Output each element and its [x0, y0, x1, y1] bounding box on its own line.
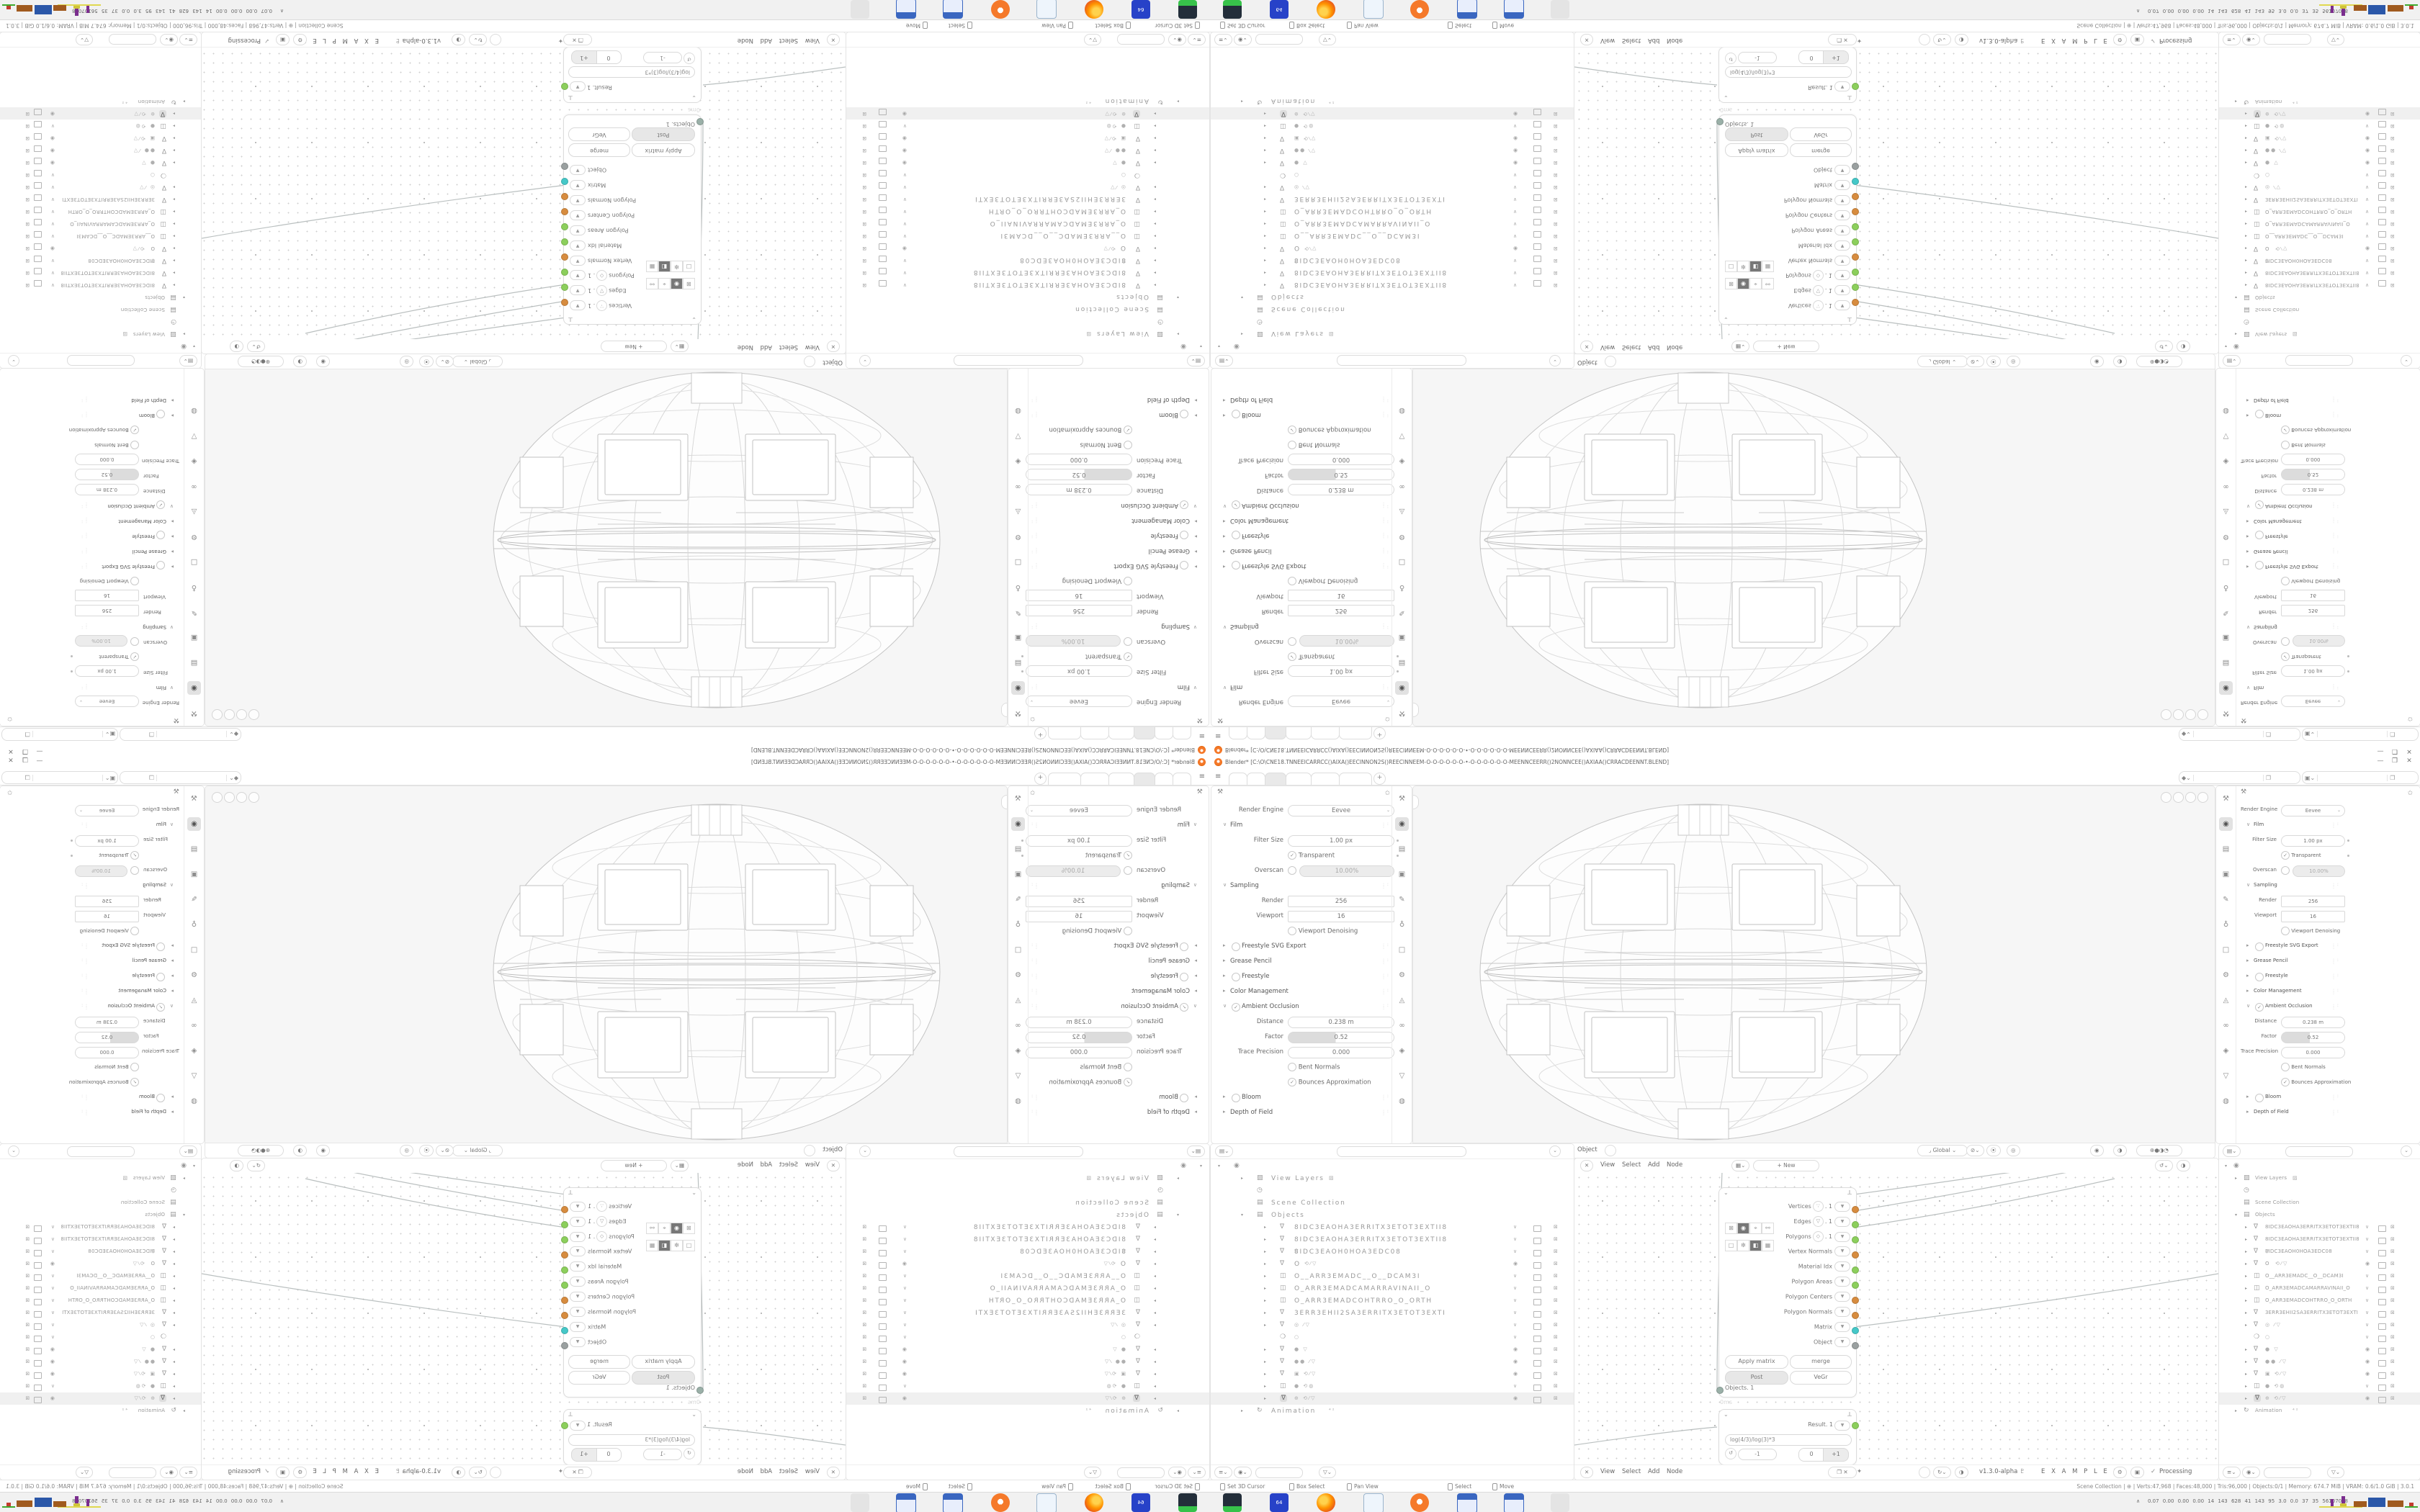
disabled-field[interactable]: 10.00% — [2293, 865, 2345, 877]
socket-row-polygon-centers[interactable]: Polygon Centers▼ — [570, 204, 701, 220]
hide-toggle[interactable]: ◉ — [902, 1395, 907, 1401]
nav-gizmo-camera[interactable] — [2197, 792, 2208, 803]
hide-toggle[interactable]: ∨ — [51, 1322, 55, 1328]
expand-arrow[interactable]: ▸ — [1264, 123, 1266, 128]
object-name[interactable]: 3ERR3EHII2SA3ERRITX3ETOT3EXTI — [62, 197, 155, 202]
radio-toggle[interactable] — [1124, 637, 1132, 646]
outliner-row-8idc3eaoha3erritx3etot3extii8[interactable]: ▸∇8IDC3EAOHA3ERRITX3ETOT3EXTII8∨⊠ — [1211, 266, 1574, 279]
section-arrow[interactable]: ∨ — [1223, 1003, 1227, 1009]
section-arrow[interactable]: ▸ — [171, 958, 174, 963]
tray-expand-icon[interactable]: ∧ — [2136, 8, 2140, 14]
nav-gizmo-pan[interactable] — [2185, 709, 2196, 720]
outliner-row-o-arr3emadc-o-dcam3i[interactable]: ▸◫O__ARR3EMADC__O__DCAM3I∨⊠ — [0, 230, 201, 242]
properties-tab-particles-icon[interactable]: ◬ — [2219, 505, 2233, 518]
render-disable-toggle[interactable]: ⊠ — [2390, 233, 2395, 239]
output-socket[interactable] — [561, 178, 568, 185]
section-toggle[interactable] — [2255, 1094, 2264, 1102]
properties-tab-world-icon[interactable]: ♁ — [187, 580, 201, 594]
taskbar-icon-hxd-64[interactable]: 64 — [1131, 0, 1150, 19]
outliner-row-objects[interactable]: ▾▤Objects — [0, 1209, 201, 1221]
outliner-row[interactable]: ▸∇●● ⁄▽◉⊠ — [846, 1356, 1209, 1368]
render-disable-toggle[interactable]: ⊠ — [1554, 1285, 1558, 1291]
shading-mode-buttons[interactable]: ⊕●◑◔ — [2136, 356, 2182, 367]
section-header[interactable]: Depth of Field — [131, 397, 166, 403]
node-menu-view[interactable]: View — [805, 1161, 820, 1169]
properties-tab-world-icon[interactable]: ♁ — [2219, 918, 2233, 932]
section-header[interactable]: Sampling — [143, 624, 166, 630]
object-name[interactable]: O — [1119, 1261, 1126, 1268]
expand-arrow[interactable]: ▸ — [173, 1396, 175, 1401]
properties-tab-object-icon[interactable]: □ — [1395, 943, 1409, 957]
hide-toggle[interactable]: ∨ — [2365, 270, 2369, 276]
scope-icon[interactable]: ◉⌄ — [2242, 34, 2260, 45]
expand-arrow[interactable]: ▸ — [1154, 148, 1156, 153]
search-input[interactable] — [2285, 355, 2353, 366]
expand-arrow[interactable]: ▾ — [1218, 1164, 1220, 1169]
expand-arrow[interactable]: ▸ — [1177, 1408, 1179, 1413]
node-canvas[interactable]: ⌄ ⟂ ⊠◉⌖⚯ □❇◧▦ Vertices∵. 1▼Edges▽. 1▼Pol… — [1574, 1173, 2218, 1465]
section-header[interactable]: Film — [2254, 822, 2264, 827]
section-header[interactable]: Color Management — [2254, 518, 2302, 524]
outliner-row-animation[interactable]: ▸↻Animation⁴² — [846, 95, 1209, 107]
expand-arrow[interactable]: ▸ — [2235, 331, 2237, 336]
nav-gizmo-zoom[interactable] — [2173, 792, 2184, 803]
display-mode-icon[interactable]: ▤⌄ — [179, 355, 197, 366]
properties-tab-scene-icon[interactable]: ✎ — [1011, 893, 1025, 906]
taskbar-icon-inactive-tool[interactable] — [1551, 0, 1569, 19]
value-field[interactable]: 256 — [1288, 605, 1394, 616]
render-disable-toggle[interactable]: ⊠ — [1554, 1346, 1558, 1352]
outliner-row-view-layers[interactable]: ▸▨View Layers▨ — [2219, 1172, 2420, 1184]
hide-toggle[interactable]: ∨ — [2365, 172, 2369, 178]
value-field[interactable]: 256 — [1026, 896, 1132, 907]
viewport-disable-toggle[interactable] — [879, 1348, 887, 1354]
checkbox[interactable] — [1288, 577, 1296, 585]
output-socket[interactable] — [561, 1206, 568, 1213]
gizmos-dropdown[interactable]: ◑ — [293, 356, 307, 367]
workspace-tab[interactable] — [1229, 727, 1247, 739]
render-disable-toggle[interactable]: ⊠ — [862, 258, 866, 264]
viewport-disable-toggle[interactable] — [1533, 182, 1541, 189]
node-menu-node[interactable]: Node — [738, 1468, 753, 1475]
outliner-row-o-arr3emadcohtrro-o-orth[interactable]: ▸◫O_ARR3EMADCOHTRRO_O_ORTH∨⊠ — [0, 1295, 201, 1307]
pivot-dropdown[interactable]: ⊘⌄ — [436, 356, 454, 367]
render-disable-toggle[interactable]: ⊠ — [2390, 1310, 2395, 1315]
expand-arrow[interactable]: ▸ — [1264, 1225, 1266, 1230]
outliner-row[interactable]: ❍○∨⊠ — [1211, 168, 1574, 181]
section-header[interactable]: Sampling — [2254, 624, 2277, 630]
properties-tab-world-icon[interactable]: ♁ — [1395, 580, 1409, 594]
outliner-row-8idc3eaoha3erritx3etot3extii8[interactable]: ▸∇8IDC3EAOHA3ERRITX3ETOT3EXTII8∨⊠ — [1211, 1233, 1574, 1246]
object-name[interactable]: Objects — [2255, 1212, 2275, 1218]
section-arrow[interactable]: ▸ — [1223, 413, 1226, 418]
outliner-row-view-layers[interactable]: ▸▨View Layers▨ — [0, 328, 201, 340]
socket-row-polygon-centers[interactable]: Polygon Centers▼ — [1719, 204, 1850, 220]
outliner-row[interactable]: ◷ — [1211, 315, 1574, 328]
outliner-row-objects[interactable]: ▾▤Objects — [1211, 1209, 1574, 1221]
pin-icon[interactable]: ✩ — [1384, 715, 1390, 722]
search-input[interactable] — [954, 355, 1083, 366]
disabled-field[interactable]: 10.00% — [1299, 635, 1394, 647]
properties-tab-material-icon[interactable]: ◍ — [187, 1094, 201, 1108]
expand-arrow[interactable]: ▸ — [2245, 1261, 2247, 1266]
outliner-row[interactable]: ▸∇▣ ⟲⁄▽◉⊠ — [1211, 1368, 1574, 1380]
taskbar-icon-firefox[interactable] — [1317, 0, 1335, 19]
viewport-disable-toggle[interactable] — [1533, 1336, 1541, 1342]
properties-tab-object-icon[interactable]: □ — [187, 943, 201, 957]
vegr-button[interactable]: VeGr — [1790, 1371, 1852, 1385]
hide-toggle[interactable]: ∨ — [1513, 197, 1517, 202]
hide-toggle[interactable]: ∨ — [2365, 1297, 2369, 1303]
section-arrow[interactable]: ▸ — [1223, 1109, 1226, 1115]
checkbox[interactable] — [1124, 1063, 1132, 1071]
outliner-row-3err3ehii2sa3erritx3etot3exti[interactable]: ▸∇3ERR3EHII2SA3ERRITX3ETOT3EXTI∨⊠ — [846, 1307, 1209, 1319]
properties-tab-scene-icon[interactable]: ✎ — [2219, 893, 2233, 906]
editor-type-icon[interactable]: ✕ — [1580, 1467, 1593, 1478]
outliner-row-8idc3eaoha3erritx3etot3extii8[interactable]: ▸∇8IDC3EAOHA3ERRITX3ETOT3EXTII8∨⊠ — [846, 1221, 1209, 1233]
outliner-row-objects[interactable]: ▾▤Objects — [0, 291, 201, 303]
viewport-disable-toggle[interactable] — [2378, 1311, 2386, 1318]
object-name[interactable]: 8IDC3EAOHA3ERRITX3ETOT3EXTII8 — [2265, 270, 2359, 276]
viewlayer-selector[interactable]: ▣⌄ ❐ — [1, 771, 118, 784]
section-arrow[interactable]: ∨ — [170, 882, 174, 888]
section-arrow[interactable]: ▸ — [1194, 942, 1197, 948]
section-header[interactable]: Film — [156, 822, 166, 827]
viewlayer-name-field[interactable] — [33, 729, 102, 740]
expression-field[interactable]: log(4/3)/log(3)*3 — [1725, 1434, 1852, 1446]
object-name[interactable]: 8IDC3EAOHA3ERRITX3ETOT3EXTII8 — [2265, 1236, 2359, 1242]
outliner-row-scene-collection[interactable]: ▤Scene Collection — [2219, 303, 2420, 315]
properties-tab-constraints-icon[interactable]: ◈ — [2219, 1044, 2233, 1058]
value-field[interactable]: 16 — [75, 911, 139, 922]
render-disable-toggle[interactable]: ⊠ — [2390, 184, 2395, 190]
hide-toggle[interactable]: ∨ — [903, 1297, 907, 1303]
apply-matrix-button[interactable]: Apply matrix — [1725, 143, 1788, 157]
node-menu-select[interactable]: Select — [1622, 1468, 1641, 1475]
checkbox[interactable]: ✓ — [1288, 1078, 1296, 1086]
workspace-tab[interactable] — [1286, 773, 1312, 785]
viewport-disable-toggle[interactable] — [1533, 1385, 1541, 1391]
expand-arrow[interactable]: ▾ — [1241, 294, 1243, 300]
outliner-row[interactable]: ▸∇● ▽◉⊠ — [2219, 1344, 2420, 1356]
properties-tab-particles-icon[interactable]: ◬ — [187, 994, 201, 1007]
viewport-disable-toggle[interactable] — [2378, 1397, 2386, 1403]
properties-tab-object-icon[interactable]: □ — [187, 555, 201, 569]
viewlayer-selector[interactable]: ▣⌄ ❐ — [2302, 771, 2419, 784]
output-socket[interactable] — [1852, 284, 1859, 291]
node-menu-view[interactable]: View — [1600, 1468, 1615, 1475]
expand-arrow[interactable]: ▸ — [1154, 1298, 1156, 1303]
outliner-row[interactable]: ❍○∨⊠ — [2219, 168, 2420, 181]
sort-icon[interactable]: ≡⌄ — [1214, 34, 1232, 45]
render-disable-toggle[interactable]: ⊠ — [862, 123, 866, 129]
properties-tab-world-icon[interactable]: ♁ — [1395, 918, 1409, 932]
value-field[interactable]: 16 — [1288, 590, 1394, 601]
render-disable-toggle[interactable]: ⊠ — [862, 184, 866, 190]
value-field[interactable]: 16 — [1026, 590, 1132, 601]
render-engine-dropdown[interactable]: Eevee⌄ — [1026, 805, 1132, 816]
expand-arrow[interactable]: ▸ — [173, 111, 175, 116]
hide-toggle[interactable]: ∨ — [903, 1334, 907, 1340]
section-header[interactable]: Freestyle — [132, 973, 155, 978]
section-arrow[interactable]: ▸ — [1194, 973, 1197, 978]
section-header[interactable]: Grease Pencil — [2254, 549, 2287, 554]
post-button[interactable]: Post — [1725, 127, 1788, 141]
outliner-row-8idc3eaoh0hoa3edc08[interactable]: ▸∇8IDC3EAOH0HOA3EDC08▽∨⊠ — [1211, 1246, 1574, 1258]
object-name[interactable]: 8IDC3EAOHA3ERRITX3ETOT3EXTII8 — [1294, 281, 1448, 288]
hide-toggle[interactable]: ∨ — [2365, 209, 2369, 215]
section-header[interactable]: Film — [156, 685, 166, 690]
object-name[interactable]: O__ARR3EMADC__O__DCAM3I — [1294, 1273, 1420, 1280]
step-up-button[interactable]: +1 — [571, 50, 597, 64]
viewport-disable-toggle[interactable] — [1533, 207, 1541, 213]
section-arrow[interactable]: ▸ — [2246, 988, 2249, 994]
viewport-disable-toggle[interactable] — [1533, 268, 1541, 274]
taskbar-icon-blender[interactable] — [1410, 1493, 1429, 1512]
render-disable-toggle[interactable]: ⊠ — [1554, 148, 1558, 153]
scene-name-field[interactable] — [2194, 729, 2263, 740]
section-header[interactable]: Grease Pencil — [133, 549, 166, 554]
object-name[interactable]: O__ARR3EMADC__O__DCAM3I — [1000, 1273, 1126, 1280]
viewport-disable-toggle[interactable] — [34, 207, 42, 213]
taskbar-icon-notepad[interactable] — [1036, 1493, 1057, 1512]
tree-settings-icon[interactable]: ⚙ — [293, 34, 307, 45]
collapse-icon[interactable]: ⌄ — [1724, 94, 1729, 101]
viewport-menu-object[interactable]: Object — [823, 1146, 843, 1153]
hide-toggle[interactable]: ◉ — [50, 1371, 55, 1377]
object-name[interactable]: 3ERR3EHII2SA3ERRITX3ETOT3EXTI — [974, 1310, 1126, 1317]
output-socket[interactable] — [1852, 1312, 1859, 1319]
gizmo-toggles[interactable]: ↺⌄ — [2155, 1160, 2173, 1171]
viewport-disable-toggle[interactable] — [2378, 133, 2386, 140]
viewport-disable-toggle[interactable] — [34, 170, 42, 176]
output-socket[interactable] — [561, 193, 568, 200]
hide-toggle[interactable]: ∨ — [51, 1224, 55, 1230]
nav-gizmo-zoom[interactable] — [236, 792, 247, 803]
node-menu-add[interactable]: Add — [761, 1161, 772, 1169]
section-header[interactable]: Freestyle SVG Export — [1114, 562, 1178, 570]
viewport-disable-toggle[interactable] — [2378, 182, 2386, 189]
outliner-row[interactable]: ▸∇●● ⁄▽◉⊠ — [1211, 144, 1574, 156]
properties-tab-output-icon[interactable]: ▤ — [187, 656, 201, 670]
value-field[interactable]: 1.00 px — [75, 835, 139, 847]
viewport-disable-toggle[interactable] — [2378, 1225, 2386, 1232]
outliner-row-o-arr3emadcamarravinaii-o[interactable]: ▸◫O_ARR3EMADCAMARRAVINAII_O∨⊠ — [2219, 217, 2420, 230]
section-arrow[interactable]: ▸ — [171, 397, 174, 403]
section-checkbox[interactable]: ✓ — [156, 1003, 165, 1012]
value-field[interactable]: 16 — [1288, 911, 1394, 922]
tree-view-button[interactable]: ◑ — [1955, 34, 1968, 45]
checkbox[interactable] — [2281, 577, 2290, 585]
render-disable-toggle[interactable]: ⊠ — [862, 233, 866, 239]
hide-toggle[interactable]: ◉ — [2365, 1261, 2370, 1266]
value-field[interactable]: 256 — [1026, 605, 1132, 616]
checkbox[interactable]: ✓ — [2281, 652, 2290, 661]
expand-arrow[interactable]: ▾ — [1200, 343, 1202, 348]
hide-toggle[interactable]: ∨ — [903, 209, 907, 215]
value-field[interactable]: 256 — [2281, 896, 2345, 907]
section-toggle[interactable] — [156, 1094, 165, 1102]
section-header[interactable]: Depth of Field — [1230, 1109, 1273, 1116]
hide-toggle[interactable]: ◉ — [902, 148, 907, 153]
expand-arrow[interactable]: ▸ — [1154, 1274, 1156, 1279]
expand-arrow[interactable]: ▸ — [1264, 1372, 1266, 1377]
section-header[interactable]: Depth of Field — [2254, 397, 2289, 403]
expand-arrow[interactable]: ▸ — [1241, 1176, 1243, 1181]
pin-icon[interactable]: ✩ — [1030, 790, 1036, 797]
expand-arrow[interactable]: ▾ — [193, 1164, 195, 1169]
editor-type-icon[interactable]: ✕ — [1580, 341, 1593, 352]
render-disable-toggle[interactable]: ⊠ — [2390, 282, 2395, 288]
viewport-disable-toggle[interactable] — [879, 1287, 887, 1293]
hide-toggle[interactable]: ∨ — [903, 270, 907, 276]
render-disable-toggle[interactable]: ⊠ — [862, 282, 866, 288]
viewport-disable-toggle[interactable] — [879, 1385, 887, 1391]
viewport-disable-toggle[interactable] — [879, 268, 887, 274]
hide-toggle[interactable]: ◉ — [2365, 135, 2370, 141]
scene-selector[interactable]: ◆⌄ ❐ — [120, 771, 241, 784]
orientation-dropdown[interactable]: ⌟ Global ⌄ — [1917, 356, 1968, 367]
workspace-tab[interactable] — [1311, 727, 1340, 739]
expand-arrow[interactable]: ▸ — [173, 1359, 175, 1364]
outliner-row[interactable]: ▸∇●● ⁄▽◉⊠ — [2219, 144, 2420, 156]
checkbox[interactable] — [1288, 1063, 1296, 1071]
viewport-disable-toggle[interactable] — [879, 1336, 887, 1342]
properties-tab-physics-icon[interactable]: ∞ — [1395, 480, 1409, 493]
filter-dropdown[interactable]: ▽⌄ — [76, 34, 93, 45]
tree-frame-icon[interactable]: ▣ — [2130, 34, 2144, 45]
expand-arrow[interactable]: ▸ — [2245, 209, 2247, 214]
value-field[interactable]: 256 — [75, 896, 139, 907]
mode-options-icon[interactable] — [1605, 356, 1616, 367]
expand-arrow[interactable]: ▸ — [2245, 1384, 2247, 1389]
properties-tab-particles-icon[interactable]: ◬ — [1011, 994, 1025, 1007]
outliner-row-view-layers[interactable]: ▸▨View Layers▨ — [1211, 328, 1574, 340]
socket-row-vertices[interactable]: Vertices∵. 1▼ — [570, 294, 701, 311]
overlay-toggles[interactable]: ◑ — [230, 1160, 243, 1171]
value-field[interactable]: -1 — [1738, 52, 1777, 63]
hide-toggle[interactable]: ∨ — [2365, 1310, 2369, 1315]
properties-tab-object-icon[interactable]: □ — [1011, 943, 1025, 957]
tree-pin-icon[interactable]: ✦ — [1857, 37, 1862, 44]
filter-icon[interactable]: ⌄ — [859, 1146, 871, 1157]
vegr-button[interactable]: VeGr — [568, 1371, 630, 1385]
render-disable-toggle[interactable]: ⊠ — [2390, 1236, 2395, 1242]
radio-toggle[interactable] — [130, 866, 139, 875]
render-disable-toggle[interactable]: ⊠ — [25, 1371, 30, 1377]
section-toggle[interactable] — [156, 973, 165, 981]
properties-tab-material-icon[interactable]: ◍ — [1011, 1094, 1025, 1108]
outliner-row[interactable]: ▸∇▣ ⟲⁄▽◉⊠ — [2219, 132, 2420, 144]
expand-arrow[interactable]: ▸ — [1264, 197, 1266, 202]
sort-icon[interactable]: ≡⌄ — [179, 34, 197, 45]
expand-arrow[interactable]: ▸ — [1154, 1396, 1156, 1401]
collapse-icon[interactable]: ⌄ — [691, 94, 696, 101]
hide-toggle[interactable]: ∨ — [51, 172, 55, 178]
expand-arrow[interactable]: ▸ — [1154, 135, 1156, 140]
render-disable-toggle[interactable]: ⊠ — [862, 1383, 866, 1389]
render-disable-toggle[interactable]: ⊠ — [1554, 1359, 1558, 1364]
step-down-button[interactable]: 0 — [596, 50, 622, 64]
object-name[interactable]: 8IDC3EAOHA3ERRITX3ETOT3EXTII8 — [2265, 1224, 2359, 1230]
expand-arrow[interactable]: ▸ — [1264, 1261, 1266, 1266]
render-disable-toggle[interactable]: ⊠ — [862, 1273, 866, 1279]
hide-toggle[interactable]: ∨ — [1513, 1273, 1517, 1279]
section-header[interactable]: Ambient Occlusion — [107, 1003, 155, 1009]
tree-name[interactable]: E X A M P L E S — [2041, 1468, 2120, 1475]
result-output-socket[interactable] — [1852, 83, 1859, 90]
viewport-disable-toggle[interactable] — [1533, 1225, 1541, 1232]
output-socket[interactable] — [561, 1327, 568, 1334]
hide-toggle[interactable]: ∨ — [903, 172, 907, 178]
workspace-tab[interactable] — [1155, 773, 1173, 785]
pin-icon[interactable]: ✩ — [1384, 790, 1390, 797]
output-socket[interactable] — [1852, 163, 1859, 170]
output-socket[interactable] — [1852, 269, 1859, 276]
hide-toggle[interactable]: ∨ — [2365, 221, 2369, 227]
section-toggle[interactable] — [2255, 410, 2264, 418]
taskbar-icon-calculator[interactable] — [943, 1493, 963, 1512]
pivot-dropdown[interactable]: ⊘⌄ — [1966, 356, 1984, 367]
display-mode-icon[interactable]: ▤⌄ — [1215, 1146, 1233, 1157]
render-disable-toggle[interactable]: ⊠ — [2390, 135, 2395, 141]
outliner-row[interactable]: ◷ — [846, 315, 1209, 328]
section-header[interactable]: Freestyle — [2265, 973, 2288, 978]
workspace-tab[interactable] — [1080, 773, 1109, 785]
outliner-row[interactable]: ❍○∨⊠ — [846, 1331, 1209, 1344]
checkbox[interactable] — [130, 1063, 139, 1071]
expand-arrow[interactable]: ▸ — [1264, 209, 1266, 214]
properties-tab-physics-icon[interactable]: ∞ — [1395, 1019, 1409, 1032]
properties-tab-viewlayer-icon[interactable]: ▣ — [1011, 631, 1025, 644]
value-field[interactable]: 16 — [2281, 911, 2345, 922]
expand-arrow[interactable]: ▸ — [2245, 258, 2247, 263]
filter-dropdown[interactable]: ▽⌄ — [2327, 34, 2344, 45]
expand-arrow[interactable]: ▸ — [2245, 184, 2247, 189]
section-header[interactable]: Freestyle SVG Export — [2265, 564, 2318, 570]
hide-toggle[interactable]: ∨ — [903, 184, 907, 190]
tree-name[interactable]: E X A M P L E S — [2041, 37, 2120, 44]
render-disable-toggle[interactable]: ⊠ — [862, 1224, 866, 1230]
section-toggle[interactable] — [1180, 531, 1188, 539]
section-header[interactable]: Depth of Field — [1147, 1109, 1190, 1116]
outliner-row-o-arr3emadcohtrro-o-orth[interactable]: ▸◫O_ARR3EMADCOHTRRO_O_ORTH∨⊠ — [2219, 1295, 2420, 1307]
properties-tab-viewlayer-icon[interactable]: ▣ — [1395, 631, 1409, 644]
node-menu-select[interactable]: Select — [779, 1161, 798, 1169]
filter-dropdown[interactable]: ▽⌄ — [1084, 34, 1101, 45]
checkbox[interactable] — [130, 927, 139, 935]
value-field[interactable]: 0.000 — [2281, 454, 2345, 465]
mode-options-icon[interactable] — [804, 1145, 815, 1156]
value-slider[interactable]: 0.52 — [2281, 469, 2345, 480]
hide-toggle[interactable]: ∨ — [51, 282, 55, 288]
properties-tab-object-icon[interactable]: □ — [2219, 943, 2233, 957]
object-name[interactable]: 8IDC3EAOHA3ERRITX3ETOT3EXTII8 — [972, 281, 1126, 288]
menu-icon[interactable]: ≡ — [1215, 773, 1221, 780]
expand-arrow[interactable]: ▸ — [2245, 270, 2247, 275]
outliner-row-o-arr3emadc-o-dcam3i[interactable]: ▸◫O__ARR3EMADC__O__DCAM3I∨⊠ — [1211, 230, 1574, 242]
section-header[interactable]: Ambient Occlusion — [1242, 502, 1299, 509]
checkbox[interactable] — [1124, 927, 1132, 935]
expand-arrow[interactable]: ▸ — [1154, 197, 1156, 202]
copy-icon[interactable]: ❐ — [147, 775, 157, 781]
object-name[interactable]: O_ARR3EMADCAMARRAVINAII_O — [70, 1285, 155, 1291]
render-disable-toggle[interactable]: ⊠ — [2390, 1395, 2395, 1401]
expand-arrow[interactable]: ▸ — [173, 233, 175, 238]
outliner-row-objects[interactable]: ▾▤Objects — [2219, 291, 2420, 303]
render-disable-toggle[interactable]: ⊠ — [1554, 172, 1558, 178]
expand-arrow[interactable]: ▸ — [1154, 221, 1156, 226]
